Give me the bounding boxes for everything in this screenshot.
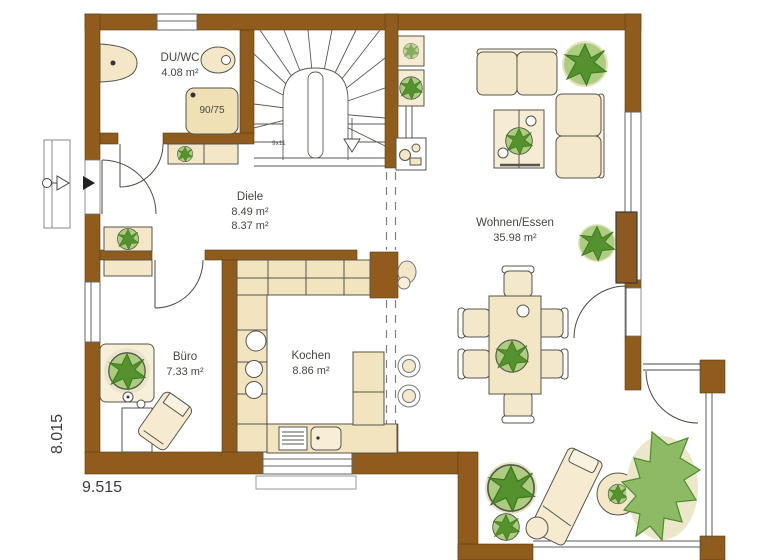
kitchen-sink bbox=[311, 427, 341, 450]
window-buero-left bbox=[85, 282, 100, 342]
floor-lamps bbox=[398, 261, 420, 407]
window-kitchen-bottom bbox=[256, 452, 356, 489]
room-name: Büro bbox=[150, 350, 220, 365]
floor-plan: DU/WC 4.08 m² 90/75 Diele 8.49 m² 8.37 m… bbox=[0, 0, 768, 560]
sideboard-right-wall bbox=[616, 212, 637, 283]
room-area: 8.37 m² bbox=[216, 219, 284, 233]
room-label-wohnen: Wohnen/Essen 35.98 m² bbox=[440, 216, 590, 245]
room-label-kochen: Kochen 8.86 m² bbox=[277, 349, 345, 378]
terrace-plant-right bbox=[622, 432, 700, 540]
room-area: 8.49 m² bbox=[216, 205, 284, 219]
stove bbox=[279, 427, 307, 450]
wohnen-door bbox=[574, 286, 641, 338]
dining-chair bbox=[458, 349, 490, 379]
window-duwc-top bbox=[157, 14, 197, 30]
plant-top-right bbox=[562, 41, 608, 87]
room-label-buero: Büro 7.33 m² bbox=[150, 350, 220, 379]
stair-note-label: 9x11 bbox=[272, 140, 286, 147]
room-name: DU/WC bbox=[145, 51, 215, 66]
dining-chair bbox=[502, 392, 534, 423]
room-label-diele: Diele 8.49 m² 8.37 m² bbox=[216, 190, 284, 234]
room-name: Diele bbox=[216, 190, 284, 205]
shelf-unit bbox=[396, 36, 426, 170]
dining-set bbox=[458, 266, 568, 423]
bath-cabinet bbox=[168, 144, 238, 164]
dining-chair bbox=[502, 266, 534, 297]
shower-size-label: 90/75 bbox=[190, 105, 234, 116]
room-label-duwc: DU/WC 4.08 m² bbox=[145, 51, 215, 80]
room-name: Wohnen/Essen bbox=[440, 216, 590, 231]
room-area: 4.08 m² bbox=[145, 66, 215, 80]
tv-stereo-cabinet bbox=[396, 138, 426, 170]
room-name: Kochen bbox=[277, 349, 345, 364]
terrace-furniture bbox=[485, 432, 700, 547]
terrace-door bbox=[643, 364, 700, 423]
room-area: 35.98 m² bbox=[440, 231, 590, 245]
dining-chair bbox=[458, 308, 490, 338]
room-area: 8.86 m² bbox=[277, 364, 345, 378]
dimension-bottom: 9.515 bbox=[82, 479, 122, 497]
floor-plan-drawing bbox=[0, 0, 768, 560]
buero-door bbox=[155, 260, 203, 308]
entrance-arrow-icon bbox=[57, 176, 69, 190]
dimension-left: 8.015 bbox=[49, 398, 67, 470]
diele-sideboard bbox=[104, 227, 152, 276]
room-area: 7.33 m² bbox=[150, 365, 220, 379]
terrace-stool bbox=[526, 517, 548, 539]
washbasin bbox=[100, 44, 137, 82]
coffee-table bbox=[494, 110, 544, 168]
